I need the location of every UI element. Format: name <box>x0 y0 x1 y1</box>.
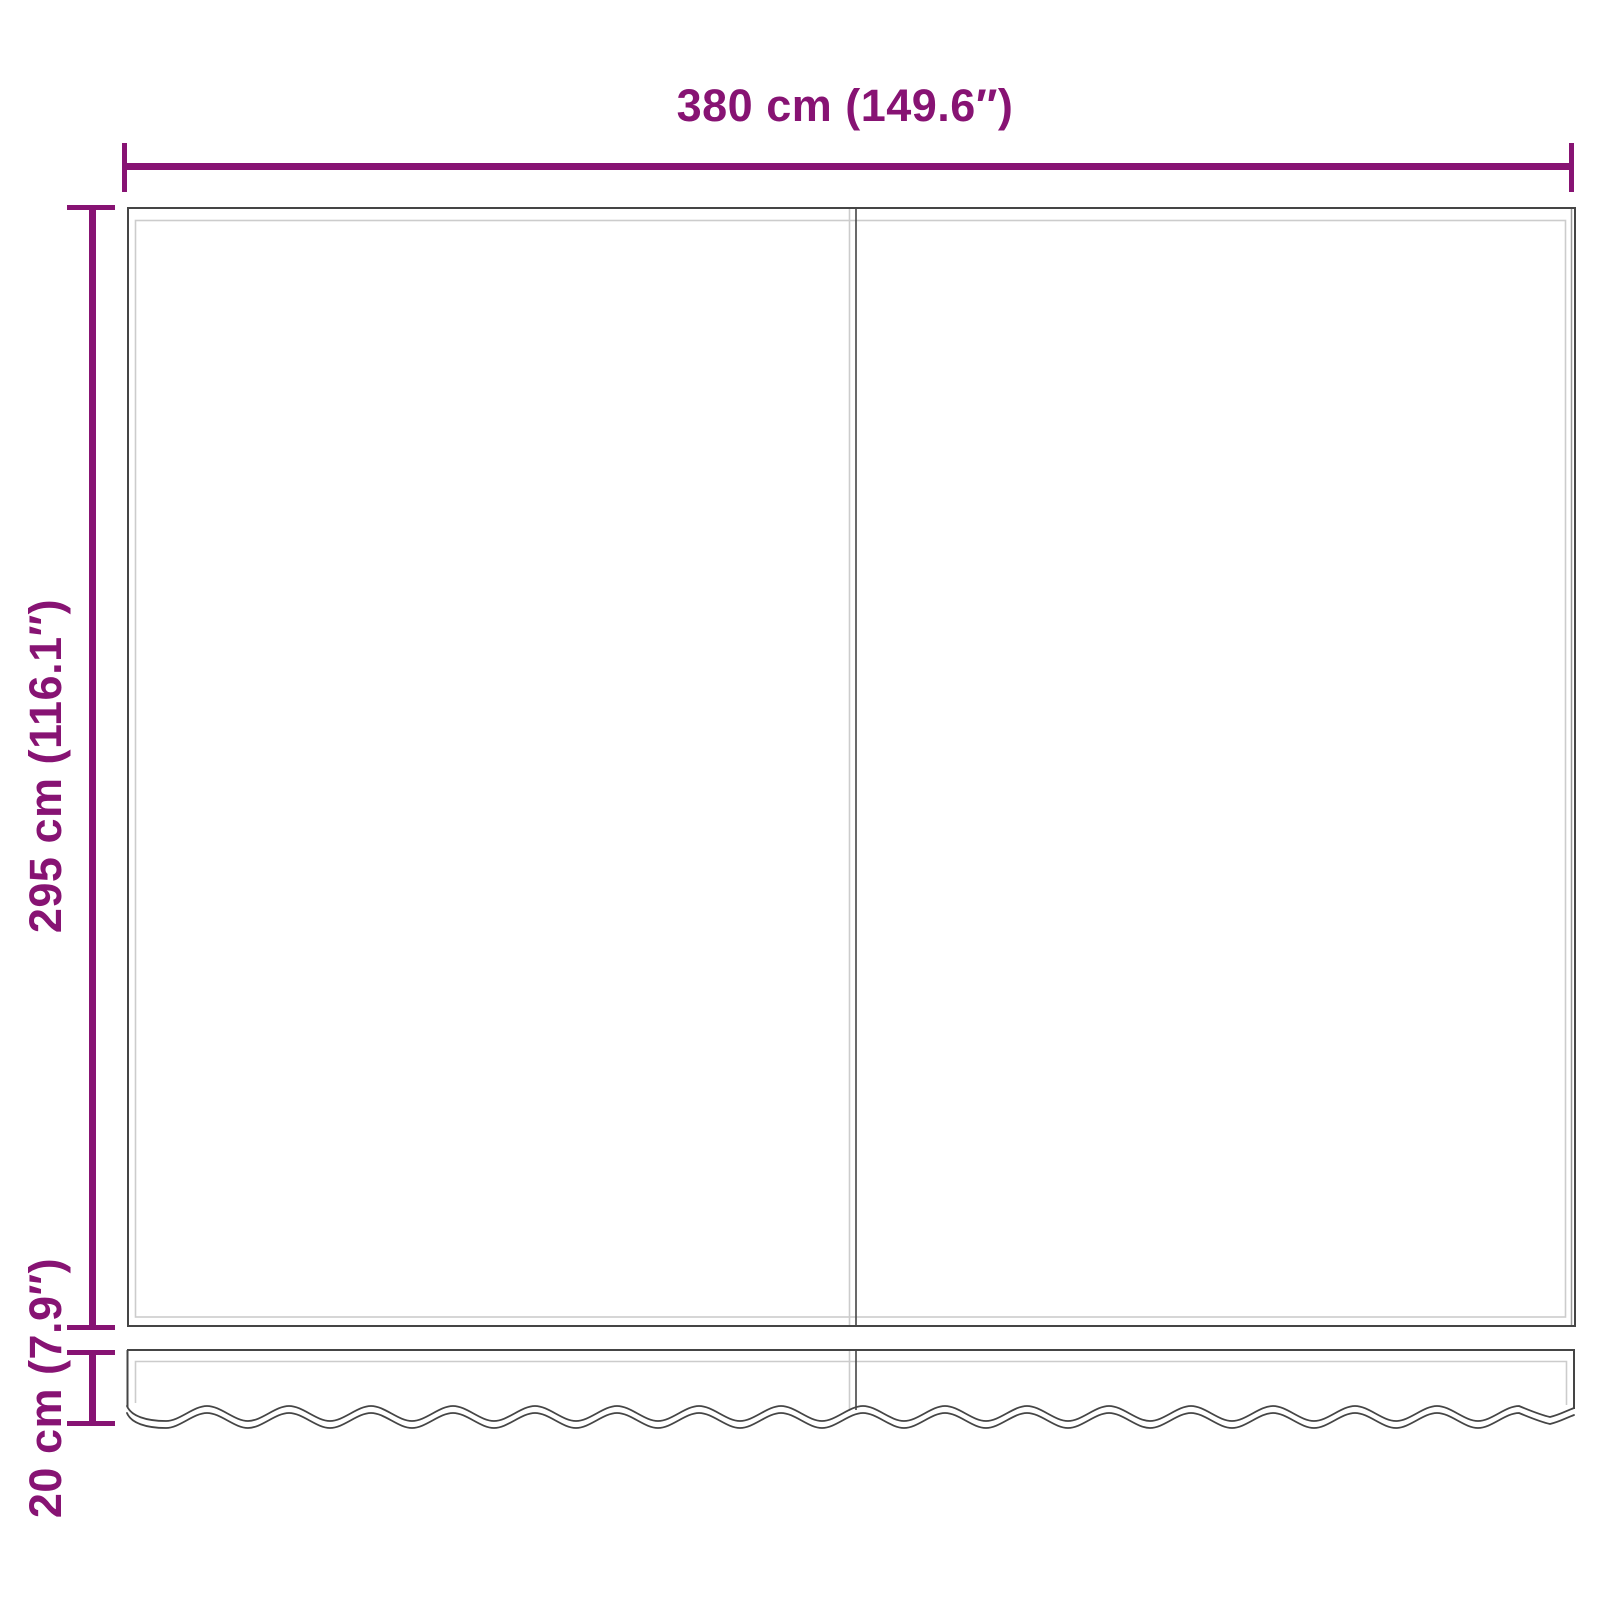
width-dimension-line <box>125 163 1574 170</box>
width-dimension-cap-left <box>122 143 127 192</box>
diagram-canvas: 380 cm (149.6″) 295 cm (116.1″) 20 cm (7… <box>0 0 1600 1600</box>
valance-hem-stitch <box>136 1362 1567 1406</box>
height-dimension-line <box>89 205 96 1325</box>
height-dimension-cap-bottom <box>67 1325 115 1330</box>
valance-dimension-cap-top <box>67 1350 115 1355</box>
valance <box>127 1350 1575 1428</box>
fabric-outline <box>128 208 1575 1326</box>
valance-dimension-label: 20 cm (7.9″) <box>20 1258 71 1518</box>
height-dimension-cap-top <box>67 205 115 210</box>
height-dimension: 295 cm (116.1″) <box>20 205 115 1330</box>
height-dimension-label: 295 cm (116.1″) <box>20 599 71 933</box>
width-dimension-cap-right <box>1569 143 1574 192</box>
valance-dimension: 20 cm (7.9″) <box>20 1258 115 1518</box>
awning-fabric <box>128 208 1575 1326</box>
fabric-hem-stitch <box>136 221 1566 1318</box>
width-dimension-label: 380 cm (149.6″) <box>677 80 1014 131</box>
width-dimension: 380 cm (149.6″) <box>122 80 1574 192</box>
valance-dimension-cap-bottom <box>67 1421 115 1426</box>
valance-wave-lower <box>127 1413 1574 1428</box>
product-dimension-diagram: 380 cm (149.6″) 295 cm (116.1″) 20 cm (7… <box>0 0 1600 1600</box>
valance-dimension-line <box>89 1350 96 1426</box>
